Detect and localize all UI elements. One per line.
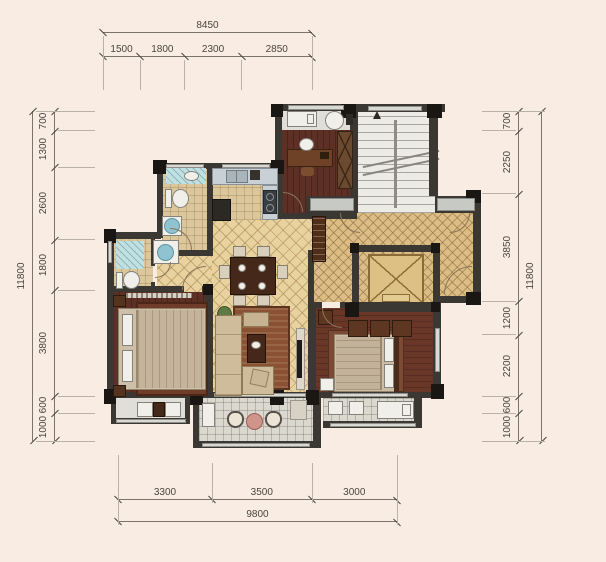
wall	[473, 196, 481, 303]
window	[116, 419, 186, 423]
column	[427, 104, 442, 118]
kitchen-appliance	[250, 170, 260, 180]
master-blanket	[136, 310, 204, 388]
dining-table	[230, 257, 276, 295]
dim-segment: 1300	[40, 131, 55, 167]
extension-line	[58, 167, 95, 168]
dim-chain-right-segments: 700 2250 3850 1200 2200 600 1000	[504, 111, 519, 441]
balcony-chair	[227, 411, 244, 428]
dim-segment: 8450	[103, 18, 312, 33]
dim-segment: 3800	[40, 290, 55, 396]
dim-segment: 600	[504, 396, 519, 413]
bay-chair	[165, 402, 181, 417]
laundry-fixture	[346, 114, 353, 125]
nightstand	[320, 378, 334, 391]
study-wardrobe	[337, 131, 353, 189]
window	[108, 241, 112, 263]
dim-chain-right-total: 11800	[527, 111, 542, 441]
dim-segment: 1000	[504, 413, 519, 441]
dim-label: 3500	[251, 487, 273, 498]
toilet-tank	[165, 189, 172, 208]
extension-line	[482, 130, 516, 131]
dim-label: 1000	[502, 416, 513, 438]
extension-line	[184, 60, 185, 90]
dim-segment: 3500	[212, 485, 312, 500]
extension-line	[212, 463, 213, 503]
wardrobe-unit	[370, 320, 390, 337]
dim-label: 1500	[110, 44, 132, 55]
balcony-chair	[328, 401, 343, 415]
washer-drum	[307, 114, 314, 124]
dim-segment: 700	[504, 111, 519, 131]
bay-table	[153, 402, 165, 417]
burner	[266, 193, 274, 201]
extension-line	[482, 334, 516, 335]
dim-label: 2200	[502, 354, 513, 376]
wall	[151, 282, 155, 292]
extension-line	[312, 36, 313, 90]
wall	[308, 302, 316, 398]
dim-label: 2250	[502, 151, 513, 173]
place-setting	[258, 264, 266, 272]
dim-label: 600	[38, 396, 49, 413]
toilet-bowl	[172, 189, 189, 208]
column	[431, 243, 440, 253]
entry-shoe-cabinet	[437, 198, 475, 211]
dim-label: 3800	[38, 332, 49, 354]
extension-line	[103, 36, 104, 90]
wall	[113, 286, 184, 292]
sliding-door	[332, 393, 408, 397]
dim-segment: 11800	[527, 111, 542, 441]
place-setting	[238, 282, 246, 290]
extension-line	[36, 441, 95, 442]
dim-segment: 1000	[40, 413, 55, 441]
dim-segment: 2250	[504, 131, 519, 194]
extension-line	[58, 413, 95, 414]
floor-plan-drawing: 8450 1500 1800 2300 2850 11800 700 1300 …	[0, 0, 606, 562]
lobby-cabinet	[310, 198, 354, 211]
shower	[116, 241, 144, 269]
stair-direction-arrow	[373, 111, 381, 119]
extension-line	[58, 130, 95, 131]
dim-chain-bottom-segments: 3300 3500 3000	[118, 485, 397, 500]
extension-line	[58, 290, 95, 291]
pillow	[384, 364, 394, 388]
extension-line	[118, 455, 119, 525]
dim-segment: 1800	[140, 42, 185, 57]
kitchen-sink	[226, 170, 248, 183]
column	[271, 104, 283, 117]
dim-label: 3000	[343, 487, 365, 498]
burner	[266, 204, 274, 212]
column	[306, 390, 319, 405]
column	[350, 302, 359, 312]
column	[350, 243, 359, 253]
extension-line	[482, 301, 516, 302]
balcony-table	[246, 413, 263, 430]
study-pot	[299, 138, 314, 151]
washer-panel	[402, 404, 411, 416]
nightstand	[113, 295, 126, 307]
dim-label: 2600	[38, 192, 49, 214]
dining-chair	[233, 246, 246, 257]
window	[368, 106, 422, 111]
dim-label: 600	[502, 396, 513, 413]
desk-lamp	[320, 152, 329, 159]
place-setting	[238, 264, 246, 272]
bedroom2-blanket	[336, 336, 382, 390]
dim-chain-top-segments: 1500 1800 2300 2850	[103, 42, 312, 57]
laundry-sink	[325, 111, 344, 130]
elevator-door	[382, 294, 410, 302]
dim-segment: 9800	[118, 507, 397, 522]
vanity-sink	[157, 244, 174, 261]
dim-chain-top-total: 8450	[103, 18, 312, 33]
dim-label: 700	[38, 112, 49, 129]
elevator-shaft-wall	[352, 245, 440, 252]
dim-segment: 700	[40, 111, 55, 131]
dim-segment: 3850	[504, 194, 519, 302]
pillow	[384, 338, 394, 362]
column	[431, 384, 444, 399]
dim-segment: 600	[40, 396, 55, 413]
dim-label: 2300	[202, 44, 224, 55]
dining-chair	[233, 295, 246, 306]
dim-label: 1800	[38, 254, 49, 276]
table-dish	[251, 341, 261, 349]
dim-label: 11800	[525, 262, 536, 289]
balcony-cabinet	[202, 403, 215, 427]
dim-segment: 1500	[103, 42, 140, 57]
window	[435, 328, 440, 372]
wardrobe-unit	[348, 320, 368, 337]
window	[288, 105, 344, 110]
toilet-bowl	[123, 271, 140, 289]
wardrobe-unit	[392, 320, 412, 337]
dim-label: 2850	[266, 44, 288, 55]
closet-rail	[126, 293, 192, 298]
dim-label: 8450	[196, 20, 218, 31]
dim-segment: 3300	[118, 485, 212, 500]
extension-line	[241, 60, 242, 90]
study-chair	[301, 167, 314, 176]
extension-line	[140, 60, 141, 90]
dim-chain-left-segments: 700 1300 2600 1800 3800 600 1000	[40, 111, 55, 441]
toilet-tank	[116, 272, 123, 289]
dining-chair	[257, 295, 270, 306]
balcony-shelf	[290, 400, 307, 420]
nightstand	[113, 385, 126, 397]
dim-label: 1800	[151, 44, 173, 55]
stair-stringer	[394, 120, 397, 208]
bay-chair	[137, 402, 153, 417]
extension-line	[58, 396, 95, 397]
hall-cabinet	[312, 216, 326, 262]
extension-line	[36, 111, 95, 112]
extension-line	[482, 111, 545, 112]
ottoman	[250, 368, 270, 387]
dim-label: 1200	[502, 307, 513, 329]
balcony-chair	[349, 401, 364, 415]
extension-line	[312, 463, 313, 503]
sofa-bench	[243, 312, 269, 327]
dim-label: 9800	[246, 509, 268, 520]
pillow	[122, 350, 133, 382]
dim-segment: 2300	[185, 42, 242, 57]
extension-line	[482, 193, 516, 194]
dim-segment: 11800	[18, 111, 33, 441]
window	[330, 423, 416, 427]
dining-chair	[257, 246, 270, 257]
sink-divider	[236, 170, 237, 183]
extension-line	[482, 396, 516, 397]
place-setting	[258, 282, 266, 290]
tv	[297, 340, 302, 378]
dim-segment: 1200	[504, 301, 519, 335]
dim-label: 3850	[502, 236, 513, 258]
dim-chain-left-total: 11800	[18, 111, 33, 441]
dim-segment: 1800	[40, 240, 55, 290]
extension-line	[58, 239, 95, 240]
refrigerator	[212, 199, 231, 221]
dim-segment: 3000	[312, 485, 397, 500]
window	[202, 443, 310, 447]
extension-line	[482, 413, 516, 414]
column	[153, 160, 167, 174]
bath1-basin	[184, 171, 199, 181]
dim-chain-bottom-total: 9800	[118, 507, 397, 522]
balcony-chair	[265, 411, 282, 428]
extension-line	[482, 441, 545, 442]
column	[431, 302, 440, 312]
dim-label: 1300	[38, 138, 49, 160]
pillow	[122, 314, 133, 346]
dining-chair	[219, 265, 230, 279]
dim-segment: 2850	[242, 42, 312, 57]
dim-label: 11800	[16, 262, 27, 289]
dim-segment: 2200	[504, 335, 519, 397]
dim-label: 1000	[38, 416, 49, 438]
sofa	[215, 315, 242, 396]
dim-label: 700	[502, 112, 513, 129]
headboard	[394, 334, 399, 392]
dim-segment: 2600	[40, 167, 55, 240]
dining-chair	[277, 265, 288, 279]
dim-label: 3300	[154, 487, 176, 498]
extension-line	[397, 455, 398, 525]
